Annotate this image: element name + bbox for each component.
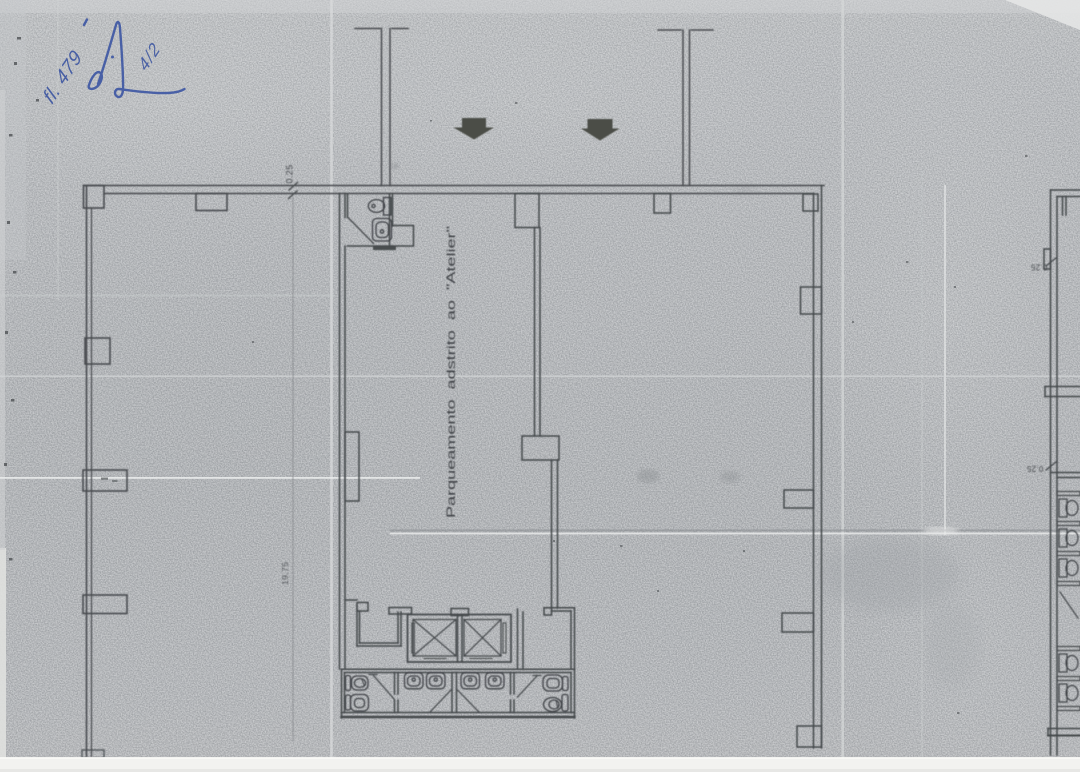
svg-text:0.25: 0.25	[1026, 464, 1043, 473]
svg-text:0.25: 0.25	[1030, 263, 1047, 272]
svg-text:0.25: 0.25	[285, 164, 295, 183]
svg-text:Parqueamento adstrito ao "A: Parqueamento adstrito ao "Atelier"	[445, 226, 458, 518]
svg-text:19.75: 19.75	[280, 561, 290, 585]
